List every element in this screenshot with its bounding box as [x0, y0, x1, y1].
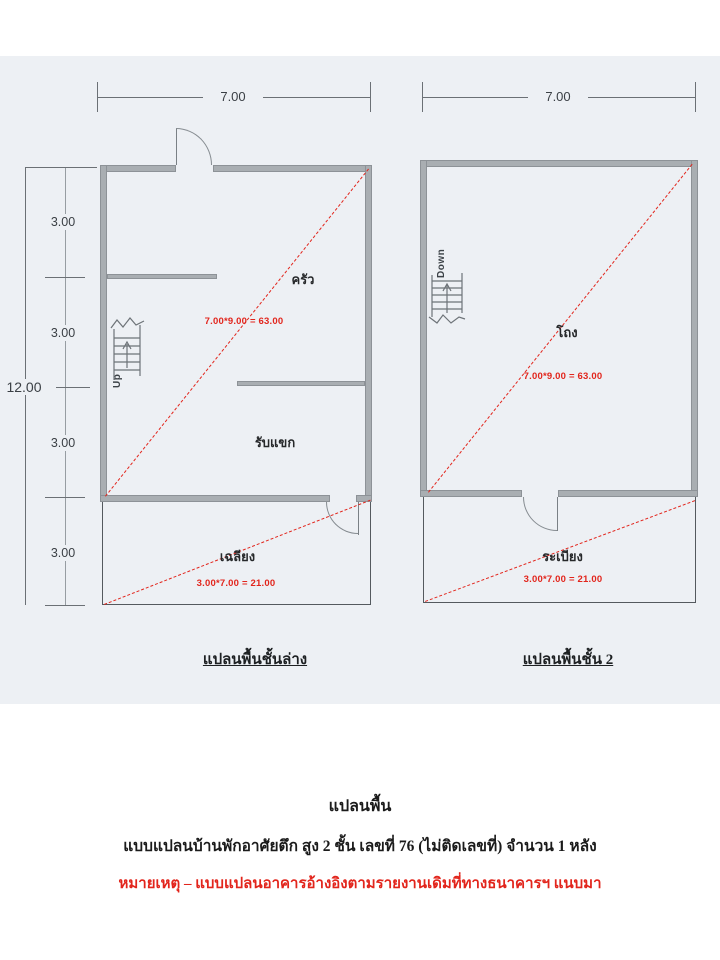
ground-segment-dim-label-3: 3.00 — [38, 435, 88, 451]
ground-floor-caption: แปลนพื้นชั้นล่าง — [160, 647, 350, 671]
ground-living-label: รับแขก — [240, 432, 310, 453]
ground-porch-bottom-line — [102, 604, 371, 605]
ground-segment-dim-label-4: 3.00 — [38, 545, 88, 561]
scanned-floor-plan-page: 7.00 3.00 3.00 3.00 3.00 12.00 — [0, 0, 720, 960]
second-stair-icon — [427, 273, 469, 325]
document-note: หมายเหตุ – แบบแปลนอาคารอ้างอิงตามรายงานเ… — [0, 871, 720, 895]
ground-top-dim-label: 7.00 — [203, 89, 263, 105]
second-balcony-bottom-line — [423, 602, 696, 603]
ground-porch-door-leaf — [358, 502, 359, 535]
second-main-area-label: 7.00*9.00 = 63.00 — [497, 371, 629, 382]
ground-porch-left-line — [102, 502, 103, 605]
ground-partition-living — [237, 381, 365, 386]
ground-segment-dim-label-1: 3.00 — [38, 214, 88, 230]
ground-dim-tick-4 — [45, 605, 85, 606]
second-wall-top — [420, 160, 698, 167]
ground-segment-dim-label-2: 3.00 — [38, 325, 88, 341]
second-balcony-area-label: 3.00*7.00 = 21.00 — [497, 574, 629, 585]
ground-wall-top-right — [213, 165, 372, 172]
ground-kitchen-label: ครัว — [273, 269, 333, 290]
ground-wall-right — [365, 165, 372, 502]
ground-overall-dim-label: 12.00 — [0, 379, 56, 395]
ground-wall-left — [100, 165, 107, 502]
ground-dim-tick-1 — [45, 277, 85, 278]
second-hall-label: โถง — [537, 322, 597, 343]
document-title: แปลนพื้น — [0, 794, 720, 819]
second-top-dim-tick-right — [695, 82, 696, 112]
second-stair-label: Down — [436, 240, 447, 278]
ground-stair-label: Up — [112, 358, 123, 388]
ground-porch-area-label: 3.00*7.00 = 21.00 — [170, 578, 302, 589]
second-top-dim-tick-left — [422, 82, 423, 112]
second-balcony-label: ระเบียง — [530, 546, 595, 567]
second-balcony-door-leaf — [557, 497, 558, 531]
second-wall-right — [691, 160, 698, 497]
ground-dim-tick-0 — [25, 167, 97, 168]
second-wall-left — [420, 160, 427, 497]
ground-top-dim-tick-left — [97, 82, 98, 112]
second-balcony-right-line — [695, 497, 696, 603]
ground-dim-tick-3 — [45, 497, 85, 498]
ground-wall-bottom-left — [100, 495, 330, 502]
second-floor-caption: แปลนพื้นชั้น 2 — [478, 647, 658, 671]
ground-top-dim-tick-right — [370, 82, 371, 112]
second-balcony-left-line — [423, 497, 424, 603]
ground-main-area-label: 7.00*9.00 = 63.00 — [178, 316, 310, 327]
second-wall-bottom-left — [420, 490, 522, 497]
ground-porch-right-line — [370, 502, 371, 605]
document-description: แบบแปลนบ้านพักอาศัยตึก สูง 2 ชั้น เลขที่… — [0, 833, 720, 858]
ground-porch-label: เฉลียง — [205, 546, 270, 567]
ground-partition-kitchen — [107, 274, 217, 279]
ground-wall-top-left — [100, 165, 176, 172]
second-top-dim-label: 7.00 — [528, 89, 588, 105]
second-wall-bottom-right — [558, 490, 698, 497]
ground-segment-dim-line — [65, 167, 66, 605]
